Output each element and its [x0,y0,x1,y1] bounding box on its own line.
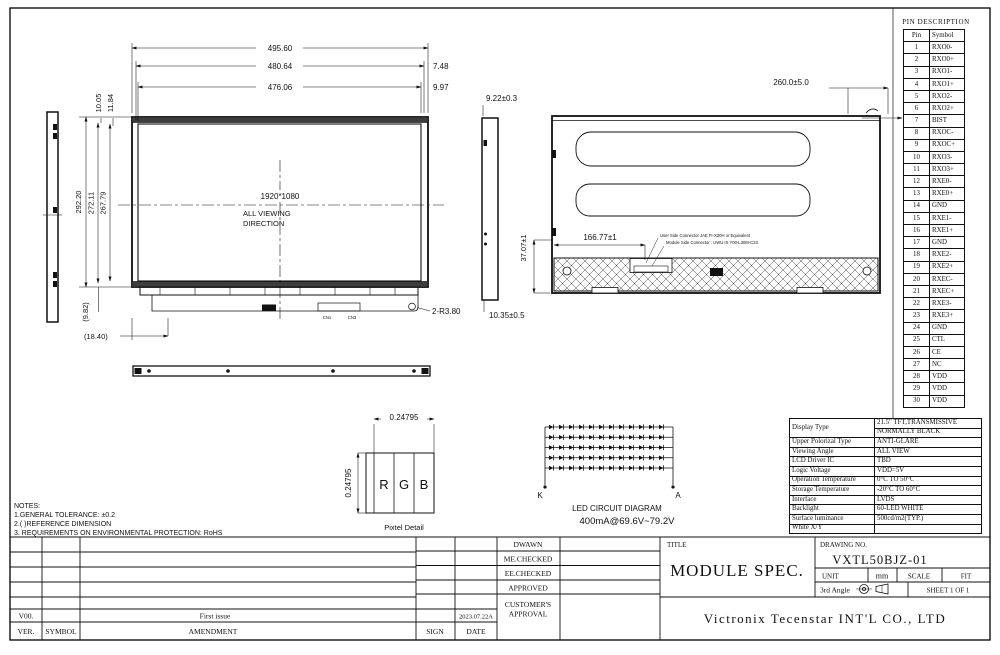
connector-cn3-label: CN3 [348,315,357,320]
pin-number: 12 [904,176,930,188]
pin-symbol: RXEC- [930,273,965,285]
pin-row: 16RXE1+ [904,225,965,237]
pin-row: 20RXEC- [904,273,965,285]
approval-approved: APPROVED [508,584,548,593]
dim-ref-18-40: (18.40) [84,332,108,341]
viewing-direction-label-2: DIRECTION [243,219,284,228]
pin-row: 6RXO2+ [904,103,965,115]
pin-symbol: NC [930,359,965,371]
pin-symbol: RXO0- [930,42,965,54]
dim-corner-radius: 2-R3.80 [432,307,461,316]
pin-symbol: VDD [930,383,965,395]
subpixel-r-label: R [379,477,388,492]
pin-symbol: RXOC- [930,127,965,139]
dim-pixel-width: 0.24795 [390,413,419,422]
dim-272-11: 272.11 [87,192,96,214]
pin-row: 24GND [904,322,965,334]
drawing-sheet: 1920*1080 ALL VIEWING DIRECTION CN1 CN3 … [0,0,1000,655]
pin-number: 20 [904,273,930,285]
pin-row: 8RXOC- [904,127,965,139]
pin-row: 19RXE2+ [904,261,965,273]
title-label: TITLE [667,541,686,549]
dim-11-84: 11.84 [106,94,115,112]
pin-row: 30VDD [904,395,965,407]
spec-row: Viewing Angle ALL VIEW [790,447,982,457]
dim-9-97: 9.97 [433,83,449,92]
pin-row: 13RXE0+ [904,188,965,200]
revision-col-symbol: SYMBOL [45,627,77,636]
spec-row: Storage Temperature -20°C TO 60°C [790,486,982,496]
spec-label: Viewing Angle [790,447,875,457]
spec-label: Display Type [790,419,875,438]
pin-row: 11RXO3+ [904,164,965,176]
note-2: 2.( )REFERENCE DIMENSION [14,521,111,528]
pin-number: 3 [904,66,930,78]
pin-number: 6 [904,103,930,115]
pin-symbol: RXE0- [930,176,965,188]
spec-value: 21.5" TFT,TRANSMISSIVE [875,419,982,429]
spec-row: Interface LVDS [790,495,982,505]
revision-col-ver: VER. [18,627,35,636]
third-angle-symbol [856,584,888,594]
unit-value: mm [876,572,889,581]
pin-number: 19 [904,261,930,273]
pin-symbol: RXE3+ [930,310,965,322]
pixel-detail-caption: Pixtel Detail [384,523,424,532]
pin-row: 18RXE2- [904,249,965,261]
document-title: MODULE SPEC. [670,561,804,580]
pin-symbol: VDD [930,395,965,407]
scale-label: SCALE [908,573,930,581]
pin-symbol: RXOC+ [930,139,965,151]
spec-row: Logic Voltage VDD=5V [790,466,982,476]
projection-angle-label: 3rd Angle [820,586,850,595]
note-1: 1.GENERAL TOLERANCE: ±0.2 [14,512,115,519]
pin-row: 21RXEC+ [904,285,965,297]
dim-rear-width: 260.0±5.0 [773,78,809,87]
led-circuit-diagram: K A LED CIRCUIT DIAGRAM 400mA@69.6V~79.2… [537,424,681,527]
subpixel-b-label: B [420,477,429,492]
dim-pixel-height: 0.24795 [344,468,353,497]
pin-symbol: VDD [930,371,965,383]
spec-value: VDD=5V [875,466,982,476]
pin-number: 15 [904,212,930,224]
pin-number: 30 [904,395,930,407]
pin-col-header: Pin [904,30,930,42]
side-view-left [43,112,62,322]
approval-me-checked: ME.CHECKED [504,555,553,564]
pin-symbol: RXE1- [930,212,965,224]
dim-495-60: 495.60 [268,44,293,53]
pixel-detail: 0.24795 0.24795 R G B Pixtel Detail [344,412,434,532]
approval-drawn: DWAWN [514,540,544,549]
pin-number: 18 [904,249,930,261]
pin-number: 13 [904,188,930,200]
dim-ref-9-82: (9.82) [81,302,90,322]
spec-value [875,524,982,534]
pin-symbol: GND [930,237,965,249]
revision-description: First issue [200,612,231,621]
revision-col-amendment: AMENDMENT [189,627,238,636]
pin-symbol: RXE1+ [930,225,965,237]
spec-label: Upper Polorizal Type [790,438,875,448]
pin-row: 22RXE3- [904,298,965,310]
spec-value: -20°C TO 60°C [875,486,982,496]
pin-row: 3RXO1- [904,66,965,78]
spec-label: White X/Y [790,524,875,534]
pin-row: 26CE [904,346,965,358]
pin-row: 23RXE3+ [904,310,965,322]
pin-row: 29VDD [904,383,965,395]
approval-sign-label: SIGN [426,627,444,636]
approval-date-value: 2023.07.22A [459,614,493,621]
pin-symbol: RXE0+ [930,188,965,200]
dim-bottom-thickness: 10.35±0.5 [489,311,525,320]
pin-row: 7BIST [904,115,965,127]
spec-row: Upper Polorizal Type ANTI-GLARE [790,438,982,448]
pin-row: 10RXO3- [904,151,965,163]
spec-label: Backlight [790,505,875,515]
pin-symbol: RXO3+ [930,164,965,176]
notes-title: NOTES: [14,503,40,510]
spec-table: Display Type 21.5" TFT,TRANSMISSIVE NORM… [789,418,982,534]
spec-value: LVDS [875,495,982,505]
led-circuit-title: LED CIRCUIT DIAGRAM [572,504,662,513]
note-3: 3. REQUIREMENTS ON ENVIRONMENTAL PROTECT… [14,530,223,537]
pin-symbol: GND [930,322,965,334]
viewing-direction-label-1: ALL VIEWING [243,209,291,218]
spec-label: LCD Driver IC [790,457,875,467]
revision-version: V00. [19,612,34,621]
spec-row: Backlight 60-LED WHITE [790,505,982,515]
dim-292-20: 292.20 [74,191,83,214]
user-connector-note: User Side Connector JAE FI-X30H or Equiv… [660,233,751,238]
pin-number: 1 [904,42,930,54]
pin-symbol: RXO3- [930,151,965,163]
spec-value: NORMALLY BLACK [875,428,982,438]
pin-number: 8 [904,127,930,139]
spec-label: Operation Temperature [790,476,875,486]
pin-symbol: RXO0+ [930,54,965,66]
pin-symbol: GND [930,200,965,212]
resolution-label: 1920*1080 [261,192,300,201]
dim-thickness: 9.22±0.3 [486,94,518,103]
pin-number: 11 [904,164,930,176]
pin-number: 5 [904,90,930,102]
pin-row: 17GND [904,237,965,249]
pin-symbol: RXO2- [930,90,965,102]
spec-label: Storage Temperature [790,486,875,496]
front-view-labels: 1920*1080 ALL VIEWING DIRECTION CN1 CN3 [243,190,357,320]
drawing-number: VXTL50BJZ-01 [832,553,927,567]
unit-label: UNIT [822,573,839,581]
pin-table-title: PIN DESCRIPTION [902,18,970,26]
spec-value: ALL VIEW [875,447,982,457]
pin-row: 4RXO1+ [904,78,965,90]
pin-row: 28VDD [904,371,965,383]
pin-symbol: RXE2- [930,249,965,261]
spec-row: LCD Driver IC TBD [790,457,982,467]
spec-value: 0°C TO 50°C [875,476,982,486]
pin-symbol: RXO1+ [930,78,965,90]
pin-number: 23 [904,310,930,322]
spec-row: Display Type 21.5" TFT,TRANSMISSIVE [790,419,982,429]
spec-value: 60-LED WHITE [875,505,982,515]
anode-label: A [675,491,681,500]
dim-10-05: 10.05 [94,94,103,113]
sheet-number: SHEET 1 OF 1 [927,587,970,595]
pin-row: 9RXOC+ [904,139,965,151]
pin-symbol: RXO2+ [930,103,965,115]
scale-value: FIT [961,573,972,581]
spec-label: Interface [790,495,875,505]
pin-number: 22 [904,298,930,310]
pin-number: 27 [904,359,930,371]
pin-row: 12RXE0- [904,176,965,188]
connector-cn1-label: CN1 [323,315,332,320]
drawing-canvas: 1920*1080 ALL VIEWING DIRECTION CN1 CN3 … [0,0,1000,655]
pin-number: 24 [904,322,930,334]
approval-date-label: DATE [466,627,486,636]
spec-value: 500cd/m2(TYP.) [875,514,982,524]
pin-row: 1RXO0- [904,42,965,54]
spec-row: Surface luminance 500cd/m2(TYP.) [790,514,982,524]
pin-symbol: CTL [930,334,965,346]
pin-symbol: BIST [930,115,965,127]
dim-480-64: 480.64 [268,62,293,71]
pin-symbol: RXE2+ [930,261,965,273]
spec-label: Surface luminance [790,514,875,524]
pin-row: 2RXO0+ [904,54,965,66]
spec-value: TBD [875,457,982,467]
pin-table-header: Pin Symbol [904,30,965,42]
module-connector-note: Module Side Connector : UWU IS Y00-L30M-… [666,240,759,245]
led-circuit-rating: 400mA@69.6V~79.2V [580,516,676,527]
pin-number: 26 [904,346,930,358]
pin-symbol: RXO1- [930,66,965,78]
company-name: Victronix Tecenstar INT'L CO., LTD [704,611,947,626]
pin-number: 2 [904,54,930,66]
dim-connector-y: 37.07±1 [519,234,528,261]
pin-symbol: CE [930,346,965,358]
spec-value: ANTI-GLARE [875,438,982,448]
pin-number: 9 [904,139,930,151]
dim-connector-x: 166.77±1 [583,233,617,242]
subpixel-g-label: G [399,477,409,492]
pin-number: 29 [904,383,930,395]
approval-customer-2: APPROVAL [509,610,548,619]
pin-number: 17 [904,237,930,249]
pin-number: 21 [904,285,930,297]
pin-number: 14 [904,200,930,212]
pin-number: 16 [904,225,930,237]
pin-table: Pin Symbol 1RXO0-2RXO0+3RXO1-4RXO1+5RXO2… [903,29,965,408]
approval-ee-checked: EE.CHECKED [505,569,552,578]
cathode-label: K [537,491,543,500]
dim-267-79: 267.79 [99,192,108,215]
symbol-col-header: Symbol [930,30,965,42]
pin-row: 25CTL [904,334,965,346]
approval-customer-1: CUSTOMER'S [505,600,551,609]
spec-label: Logic Voltage [790,466,875,476]
drawing-no-label: DRAWING NO. [820,541,867,549]
dim-476-06: 476.06 [268,83,293,92]
pin-row: 14GND [904,200,965,212]
dim-7-48: 7.48 [433,62,449,71]
pin-symbol: RXE3- [930,298,965,310]
pin-number: 25 [904,334,930,346]
pin-row: 15RXE1- [904,212,965,224]
bottom-view [133,366,430,376]
rear-view [482,116,880,300]
spec-row: Operation Temperature 0°C TO 50°C [790,476,982,486]
pin-number: 28 [904,371,930,383]
pin-number: 7 [904,115,930,127]
pin-row: 27NC [904,359,965,371]
pin-row: 5RXO2- [904,90,965,102]
pin-number: 4 [904,78,930,90]
spec-row: White X/Y [790,524,982,534]
pin-number: 10 [904,151,930,163]
pin-symbol: RXEC+ [930,285,965,297]
led-array [545,424,673,470]
notes: NOTES: 1.GENERAL TOLERANCE: ±0.2 2.( )RE… [14,503,223,537]
